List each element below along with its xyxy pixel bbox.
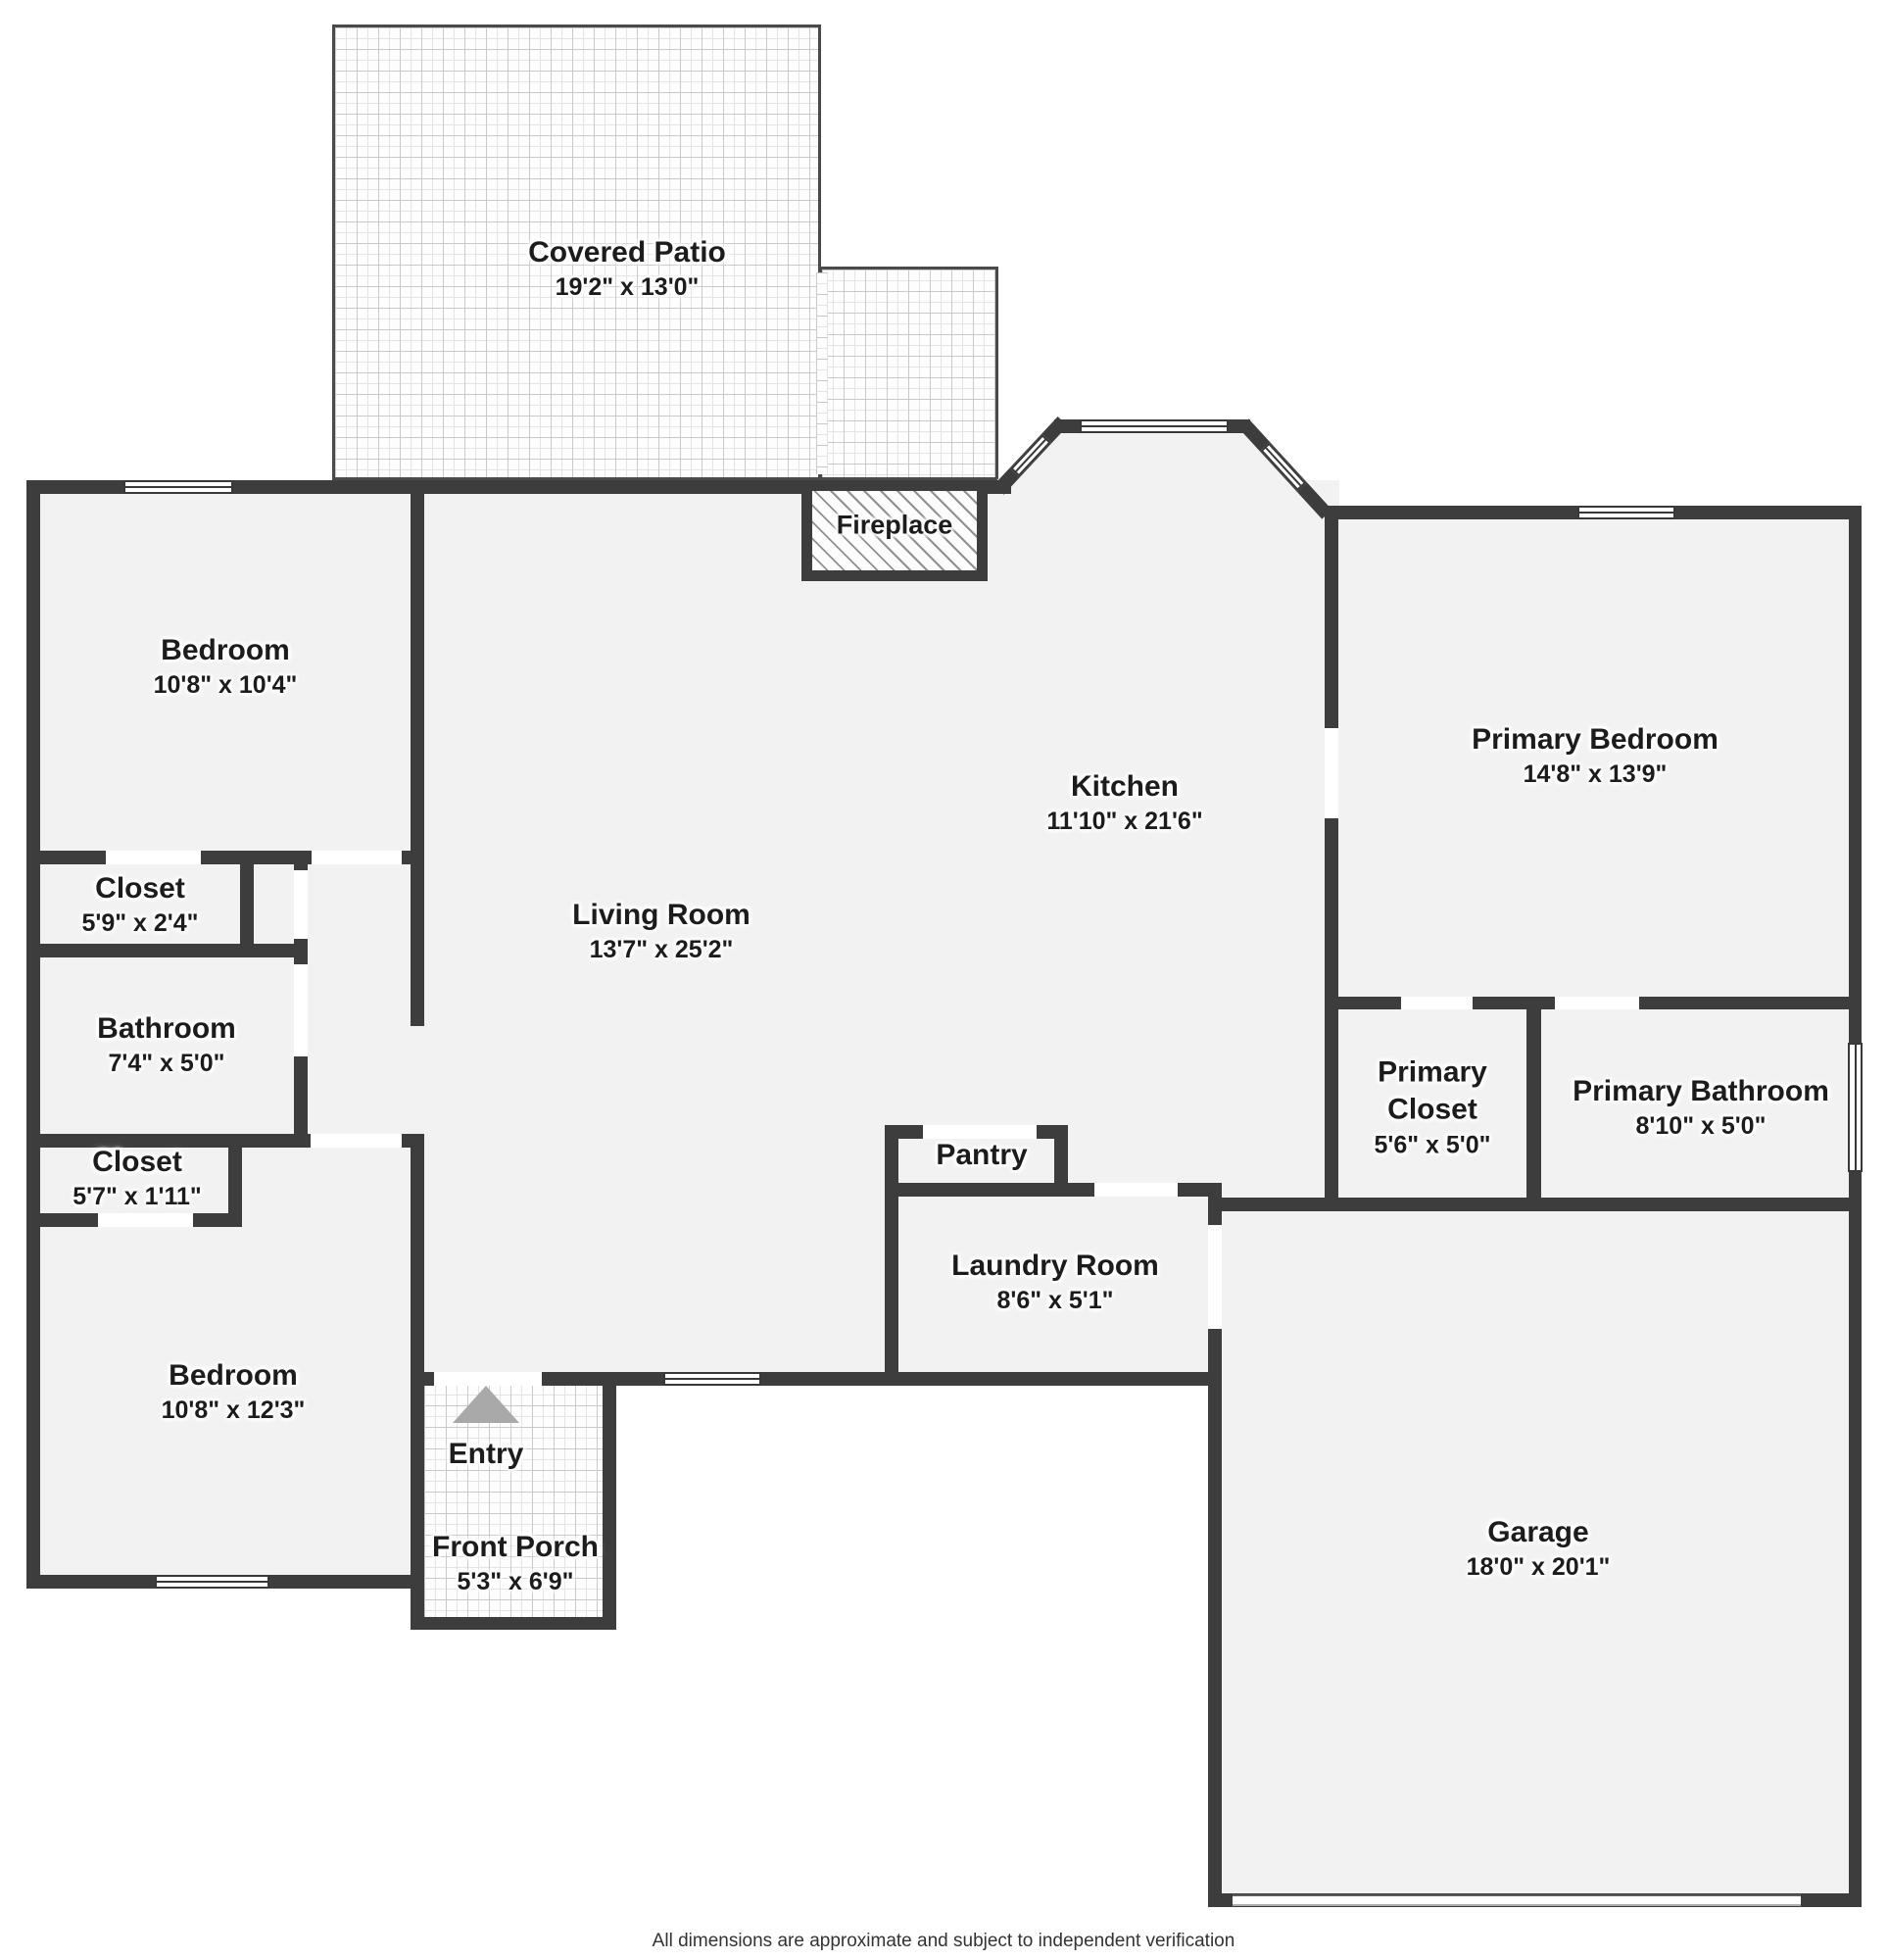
room-label-garage: Garage 18'0" x 20'1" bbox=[1467, 1514, 1611, 1583]
covered-patio-extension bbox=[819, 267, 998, 480]
wall bbox=[1325, 818, 1338, 1211]
room-dimensions: 5'6" x 5'0" bbox=[1342, 1129, 1524, 1160]
room-name: Kitchen bbox=[1046, 768, 1202, 806]
room-label-entry: Entry bbox=[449, 1436, 524, 1473]
room-label-front-porch: Front Porch 5'3" x 6'9" bbox=[432, 1529, 599, 1597]
wall bbox=[885, 1372, 1222, 1386]
room-name: Closet bbox=[73, 1144, 202, 1181]
room-name: Bedroom bbox=[162, 1357, 306, 1395]
door-opening-bedroom-bottom bbox=[311, 1134, 402, 1148]
room-dimensions: 18'0" x 20'1" bbox=[1467, 1551, 1611, 1583]
room-name: Entry bbox=[449, 1436, 524, 1473]
window-primary-bathroom bbox=[1848, 1043, 1863, 1172]
room-label-pantry: Pantry bbox=[936, 1137, 1027, 1174]
room-label-covered-patio: Covered Patio 19'2" x 13'0" bbox=[528, 234, 726, 303]
room-name: Fireplace bbox=[837, 509, 953, 543]
room-dimensions: 10'8" x 10'4" bbox=[154, 669, 298, 701]
room-label-primary-bathroom: Primary Bathroom 8'10" x 5'0" bbox=[1573, 1073, 1829, 1142]
wall bbox=[1526, 1009, 1541, 1211]
room-name: Primary Bathroom bbox=[1573, 1073, 1829, 1110]
room-name: Laundry Room bbox=[951, 1248, 1159, 1285]
window-primary-bedroom bbox=[1577, 506, 1675, 519]
wall bbox=[411, 480, 424, 1026]
wall bbox=[240, 851, 254, 957]
room-label-fireplace: Fireplace bbox=[837, 509, 953, 543]
room-name: Closet bbox=[81, 870, 198, 907]
window-living-room bbox=[663, 1372, 761, 1386]
room-name: Bathroom bbox=[97, 1010, 236, 1048]
door-opening-primary-bathroom bbox=[1555, 997, 1639, 1009]
room-label-bedroom-bottom: Bedroom 10'8" x 12'3" bbox=[162, 1357, 306, 1426]
window-bedroom-bottom bbox=[155, 1575, 269, 1589]
room-name: Living Room bbox=[572, 897, 750, 934]
floor-plan: Covered Patio 19'2" x 13'0" Fireplace Be… bbox=[0, 0, 1888, 1960]
room-name: Primary Bedroom bbox=[1472, 721, 1719, 759]
door-opening-laundry bbox=[1094, 1183, 1178, 1197]
door-opening-laundry-garage bbox=[1208, 1225, 1222, 1329]
room-name: Covered Patio bbox=[528, 234, 726, 271]
door-opening-closet-top bbox=[106, 851, 201, 864]
room-dimensions: 11'10" x 21'6" bbox=[1046, 806, 1202, 837]
front-door-opening bbox=[434, 1372, 542, 1386]
room-dimensions: 5'3" x 6'9" bbox=[432, 1566, 599, 1597]
room-dimensions: 19'2" x 13'0" bbox=[528, 271, 726, 303]
wall bbox=[411, 1617, 616, 1630]
window-bedroom-top bbox=[123, 480, 233, 494]
room-dimensions: 5'9" x 2'4" bbox=[81, 907, 198, 939]
room-name: Primary Closet bbox=[1342, 1054, 1524, 1130]
door-opening-primary-closet bbox=[1401, 997, 1473, 1009]
wall bbox=[26, 480, 40, 1589]
room-label-closet-bottom: Closet 5'7" x 1'11" bbox=[73, 1144, 202, 1212]
room-dimensions: 8'6" x 5'1" bbox=[951, 1285, 1159, 1316]
door-opening-closet-bottom bbox=[98, 1213, 193, 1227]
room-dimensions: 10'8" x 12'3" bbox=[162, 1395, 306, 1426]
wall bbox=[1054, 1125, 1068, 1197]
room-dimensions: 8'10" x 5'0" bbox=[1573, 1110, 1829, 1142]
window-bay-center bbox=[1080, 419, 1229, 433]
door-opening-bedroom-top bbox=[312, 851, 402, 864]
wall bbox=[424, 480, 817, 494]
room-label-closet-top: Closet 5'9" x 2'4" bbox=[81, 870, 198, 939]
room-label-kitchen: Kitchen 11'10" x 21'6" bbox=[1046, 768, 1202, 837]
floor-kitchen bbox=[828, 480, 1339, 1211]
room-name: Bedroom bbox=[154, 632, 298, 669]
room-dimensions: 13'7" x 25'2" bbox=[572, 934, 750, 965]
wall bbox=[1208, 1198, 1862, 1211]
room-label-primary-bedroom: Primary Bedroom 14'8" x 13'9" bbox=[1472, 721, 1719, 790]
room-dimensions: 5'7" x 1'11" bbox=[73, 1181, 202, 1212]
room-name: Pantry bbox=[936, 1137, 1027, 1174]
covered-patio-seam-patch bbox=[816, 272, 828, 474]
room-name: Front Porch bbox=[432, 1529, 599, 1566]
room-label-bedroom-top: Bedroom 10'8" x 10'4" bbox=[154, 632, 298, 701]
door-opening-hall-nook bbox=[294, 870, 308, 939]
room-dimensions: 7'4" x 5'0" bbox=[97, 1048, 236, 1079]
door-opening-primary-bedroom bbox=[1325, 728, 1338, 818]
wall bbox=[1325, 506, 1338, 728]
room-label-living-room: Living Room 13'7" x 25'2" bbox=[572, 897, 750, 965]
wall bbox=[603, 1384, 616, 1630]
wall bbox=[885, 1125, 898, 1386]
footer-disclaimer: All dimensions are approximate and subje… bbox=[653, 1931, 1235, 1952]
room-name: Garage bbox=[1467, 1514, 1611, 1551]
room-label-laundry-room: Laundry Room 8'6" x 5'1" bbox=[951, 1248, 1159, 1316]
entry-direction-arrow-icon bbox=[453, 1386, 519, 1423]
garage-door bbox=[1233, 1894, 1801, 1906]
room-label-bathroom: Bathroom 7'4" x 5'0" bbox=[97, 1010, 236, 1079]
door-opening-bathroom bbox=[294, 964, 308, 1056]
wall bbox=[26, 944, 308, 957]
room-dimensions: 14'8" x 13'9" bbox=[1472, 759, 1719, 790]
room-label-primary-closet: Primary Closet 5'6" x 5'0" bbox=[1342, 1054, 1524, 1161]
